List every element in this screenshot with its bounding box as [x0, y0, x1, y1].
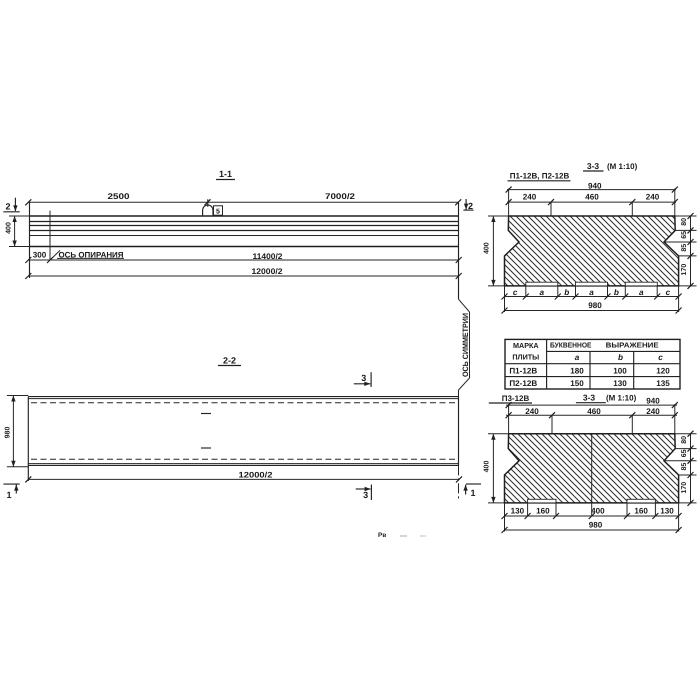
svg-text:ОСЬ СИММЕТРИИ: ОСЬ СИММЕТРИИ	[461, 313, 470, 377]
svg-text:240: 240	[523, 192, 537, 201]
svg-text:400: 400	[6, 222, 13, 234]
svg-text:c: c	[666, 288, 671, 297]
svg-text:980: 980	[588, 301, 602, 310]
svg-text:БУКВЕННОЕ: БУКВЕННОЕ	[550, 341, 592, 350]
svg-text:130: 130	[660, 507, 674, 516]
svg-text:240: 240	[646, 192, 660, 201]
svg-text:3: 3	[363, 490, 368, 500]
svg-text:240: 240	[525, 407, 539, 416]
svg-text:150: 150	[570, 379, 584, 388]
svg-text:400: 400	[484, 242, 491, 254]
svg-text:940: 940	[646, 397, 660, 406]
svg-text:980: 980	[589, 521, 603, 530]
svg-text:(М 1:10): (М 1:10)	[606, 394, 637, 403]
svg-text:65: 65	[681, 231, 688, 239]
svg-text:100: 100	[613, 366, 627, 375]
svg-text:a: a	[575, 353, 580, 362]
svg-text:П1-12В, П2-12В: П1-12В, П2-12В	[510, 172, 570, 181]
svg-text:2500: 2500	[108, 192, 131, 201]
svg-text:400: 400	[484, 461, 491, 473]
svg-text:160: 160	[536, 507, 550, 516]
svg-text:1: 1	[470, 488, 475, 498]
svg-text:7000/2: 7000/2	[325, 192, 356, 201]
svg-text:980: 980	[5, 427, 12, 439]
svg-text:2-2: 2-2	[223, 356, 236, 366]
svg-text:П3-12В: П3-12В	[502, 394, 530, 403]
svg-text:ПЛИТЫ: ПЛИТЫ	[512, 353, 539, 362]
svg-text:11400/2: 11400/2	[253, 252, 284, 261]
svg-text:(М 1:10): (М 1:10)	[607, 162, 638, 171]
svg-text:85: 85	[681, 463, 688, 471]
svg-text:c: c	[513, 288, 518, 297]
svg-text:a: a	[639, 288, 644, 297]
svg-text:2: 2	[468, 201, 473, 211]
svg-text:3-3: 3-3	[587, 161, 600, 171]
svg-text:240: 240	[646, 407, 660, 416]
svg-text:80: 80	[681, 218, 688, 226]
svg-text:3: 3	[361, 373, 366, 383]
svg-text:130: 130	[613, 379, 627, 388]
svg-text:П2-12В: П2-12В	[509, 379, 537, 388]
svg-text:b: b	[618, 353, 623, 362]
svg-text:b: b	[564, 288, 569, 297]
svg-text:120: 120	[656, 366, 670, 375]
svg-text:b: b	[614, 288, 619, 297]
svg-text:460: 460	[587, 407, 601, 416]
svg-text:170: 170	[681, 482, 688, 494]
svg-text:12000/2: 12000/2	[239, 471, 274, 480]
svg-text:П1-12В: П1-12В	[509, 366, 537, 375]
svg-text:Рв: Рв	[378, 532, 386, 539]
svg-text:1-1: 1-1	[219, 169, 232, 179]
svg-text:85: 85	[681, 244, 688, 252]
svg-text:c: c	[658, 353, 663, 362]
svg-text:МАРКА: МАРКА	[513, 341, 539, 350]
svg-text:3-3: 3-3	[583, 393, 596, 403]
svg-text:a: a	[540, 288, 545, 297]
svg-text:5: 5	[216, 208, 220, 215]
svg-text:460: 460	[585, 192, 599, 201]
svg-text:65: 65	[681, 449, 688, 457]
svg-text:135: 135	[656, 379, 670, 388]
svg-text:180: 180	[570, 366, 584, 375]
svg-text:2: 2	[5, 202, 10, 212]
svg-text:a: a	[589, 288, 594, 297]
svg-text:160: 160	[634, 507, 648, 516]
svg-text:130: 130	[511, 507, 525, 516]
svg-text:300: 300	[33, 251, 47, 260]
svg-text:940: 940	[588, 181, 602, 190]
svg-text:ВЫРАЖЕНИЕ: ВЫРАЖЕНИЕ	[606, 341, 659, 350]
svg-text:170: 170	[681, 264, 688, 276]
svg-text:12000/2: 12000/2	[252, 267, 284, 276]
svg-text:80: 80	[681, 436, 688, 444]
svg-text:1: 1	[6, 490, 11, 500]
